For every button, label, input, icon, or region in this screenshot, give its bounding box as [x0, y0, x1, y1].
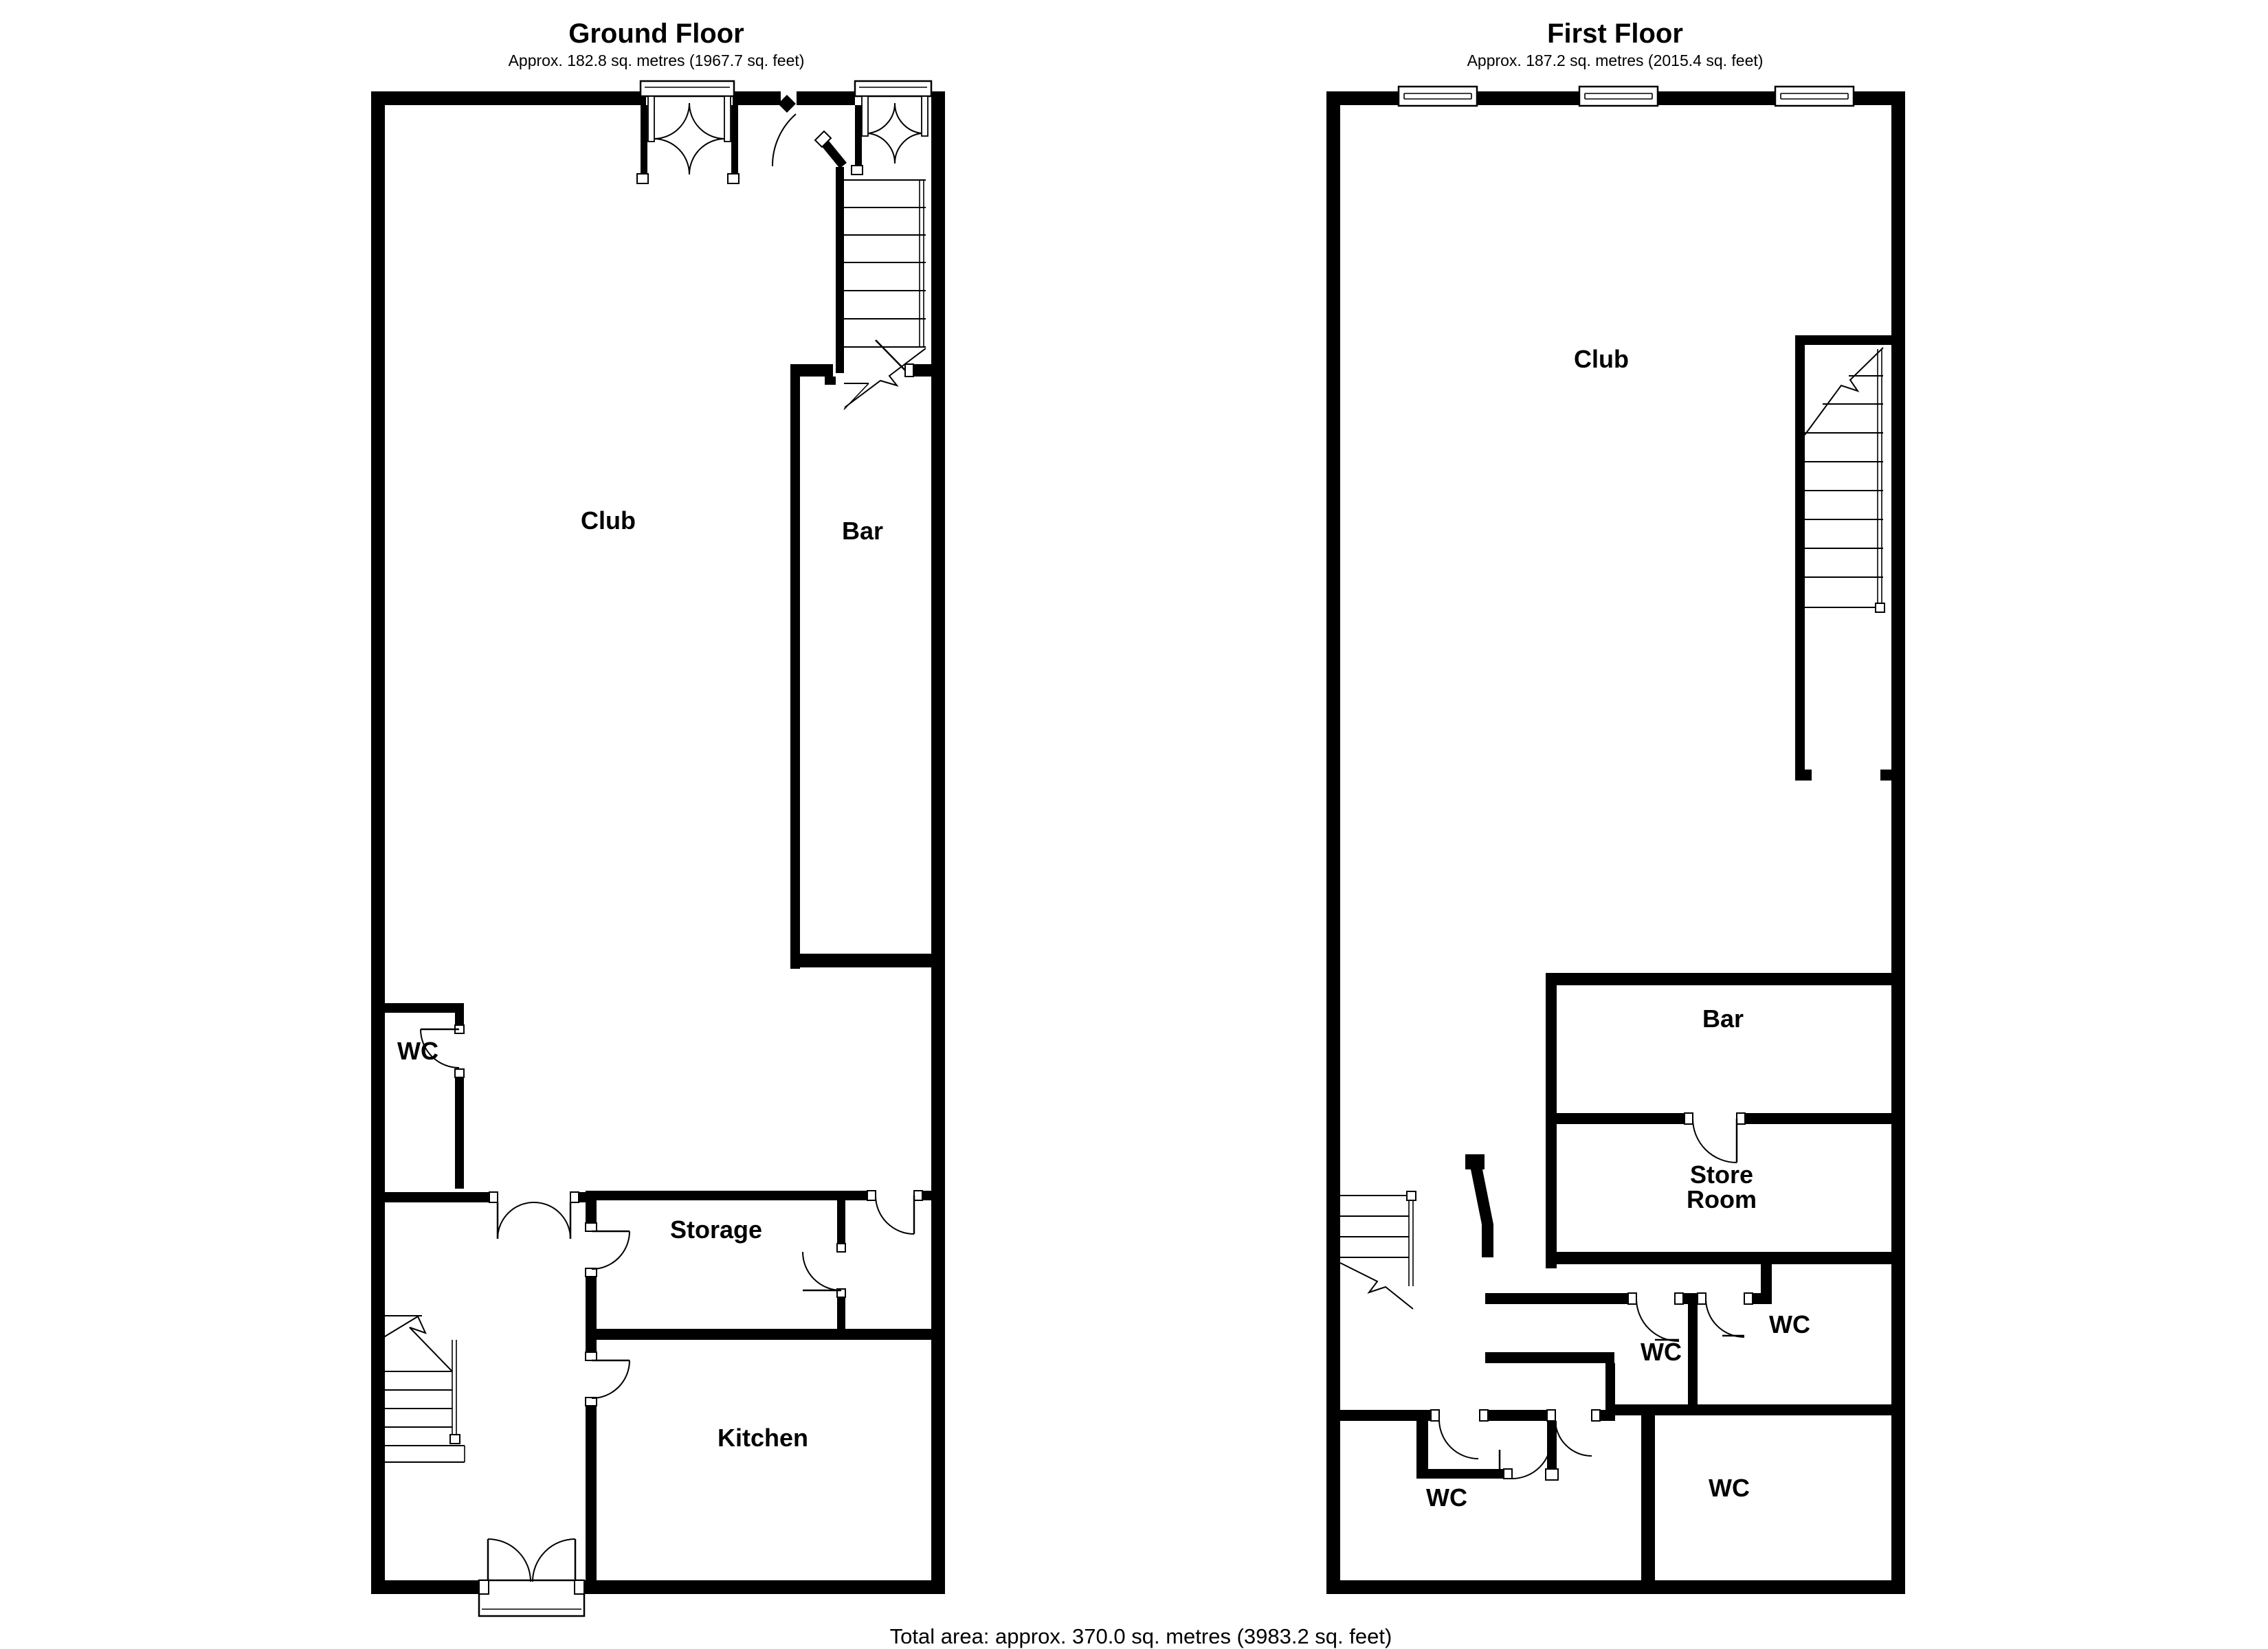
- wall-segment: [584, 1580, 945, 1594]
- door-swing-arc: [654, 103, 689, 139]
- door-jamb: [1744, 1293, 1753, 1304]
- single-entrance-door-top: [772, 95, 843, 166]
- wall-segment: [641, 105, 647, 174]
- window: [1399, 87, 1477, 106]
- ground-floor-subtitle: Approx. 182.8 sq. metres (1967.7 sq. fee…: [509, 52, 805, 69]
- ground-floor-title: Ground Floor: [568, 19, 744, 49]
- door-jamb: [1546, 1469, 1558, 1480]
- wall-segment: [836, 167, 844, 373]
- door-frame-side: [922, 96, 928, 136]
- door-swing-arc: [1706, 1299, 1744, 1337]
- door-jamb: [489, 1192, 498, 1202]
- stair-break-line: [845, 348, 926, 407]
- wall-segment: [1546, 973, 1891, 985]
- stair-break-line: [379, 1316, 452, 1371]
- total-area-text: Total area: approx. 370.0 sq. metres (39…: [890, 1624, 1392, 1648]
- wall-segment: [1416, 1469, 1504, 1479]
- door-jamb: [914, 1191, 922, 1200]
- wall-segment: [1615, 1404, 1891, 1415]
- wall-segment: [1488, 1410, 1547, 1421]
- wall-segment: [1557, 1113, 1685, 1124]
- wall-segment: [1340, 1410, 1431, 1421]
- room-label-wc-upper-right: WC: [1769, 1310, 1810, 1338]
- door-swing-arc: [1439, 1420, 1478, 1459]
- door-jamb: [1547, 1410, 1555, 1421]
- wall-end-cap: [852, 166, 863, 175]
- bar-store-door: [1685, 1113, 1745, 1163]
- door-jamb: [1480, 1410, 1488, 1421]
- stair-break-line: [1805, 348, 1883, 435]
- door-swing-arc: [689, 103, 724, 139]
- door-swing-arc: [803, 1252, 841, 1290]
- wall-segment: [825, 377, 836, 385]
- ground-floor-plan: Ground Floor Approx. 182.8 sq. metres (1…: [371, 19, 945, 1616]
- room-label-wc: WC: [397, 1037, 438, 1065]
- first-floor-title: First Floor: [1547, 19, 1683, 49]
- wall-segment: [371, 1003, 464, 1013]
- door-swing-arc: [895, 133, 922, 164]
- room-label-storage: Storage: [670, 1215, 762, 1244]
- wall-segment: [1482, 1224, 1493, 1257]
- wall-segment: [1546, 1252, 1891, 1264]
- room-label-club: Club: [581, 506, 636, 535]
- door-leaf: [876, 340, 905, 370]
- wall-segment: [837, 1200, 845, 1244]
- door-swing-arc: [772, 114, 796, 166]
- door-window-frame: [855, 81, 931, 96]
- door-swing-arc: [533, 1539, 575, 1582]
- ground-floor-walls: [371, 91, 945, 1594]
- room-label-bar: Bar: [842, 517, 883, 545]
- wall-segment: [586, 1277, 597, 1352]
- wall-segment: [1683, 1293, 1698, 1304]
- door-frame-side: [862, 96, 868, 136]
- door-swing-arc: [868, 103, 895, 133]
- door-swing-arc: [534, 1202, 570, 1239]
- room-label-wc-middle: WC: [1641, 1338, 1682, 1366]
- wall-segment: [1795, 335, 1805, 781]
- stairs-upper-right: [844, 180, 926, 410]
- wall-segment: [586, 1202, 597, 1223]
- wall-segment: [1641, 1413, 1655, 1580]
- wall-segment: [371, 91, 646, 105]
- wall-segment: [586, 1191, 867, 1200]
- wall-segment: [586, 1406, 597, 1580]
- door-swing-arc: [488, 1539, 531, 1582]
- wall-segment: [1471, 1169, 1493, 1224]
- door-jamb: [1675, 1293, 1683, 1304]
- wall-segment: [1753, 1293, 1761, 1304]
- wall-segment: [733, 91, 781, 105]
- room-label-store-room-line1: Store: [1690, 1160, 1753, 1189]
- wall-segment: [1485, 1352, 1614, 1363]
- wall-segment: [922, 1191, 931, 1200]
- wall-segment: [1795, 335, 1891, 345]
- wall-segment: [586, 1329, 931, 1340]
- door-jamb: [905, 364, 913, 377]
- door-window-frame: [1579, 87, 1658, 106]
- door-window-frame: [1399, 87, 1477, 106]
- door-jamb: [837, 1244, 845, 1252]
- room-label-bar: Bar: [1702, 1005, 1744, 1033]
- double-entrance-door-top-right: [852, 81, 931, 175]
- wall-segment: [913, 364, 931, 377]
- wall-segment: [837, 1297, 845, 1329]
- door-jamb: [1737, 1113, 1745, 1124]
- wall-segment: [1546, 973, 1557, 1268]
- detail-line: [844, 383, 869, 410]
- stairs-lower-left: [379, 1316, 465, 1462]
- door-swing-arc: [876, 1196, 914, 1234]
- door-swing-arc: [592, 1360, 630, 1398]
- wall-segment: [731, 105, 738, 174]
- windows-top: [1399, 87, 1854, 106]
- first-floor-subtitle: Approx. 187.2 sq. metres (2015.4 sq. fee…: [1467, 52, 1764, 69]
- wall-segment: [855, 105, 862, 166]
- door-swing-arc: [1693, 1119, 1737, 1163]
- door-jamb: [1685, 1113, 1693, 1124]
- door-frame-side: [648, 96, 654, 142]
- floor-plan-image: Ground Floor Approx. 182.8 sq. metres (1…: [0, 0, 2268, 1649]
- wall-segment: [931, 91, 945, 1594]
- wall-segment: [371, 1580, 479, 1594]
- wall-segment: [1485, 1293, 1628, 1304]
- room-label-kitchen: Kitchen: [718, 1424, 808, 1452]
- door-jamb: [455, 1069, 464, 1077]
- wall-segment: [1745, 1113, 1891, 1124]
- ground-floor-room-labels: Club Bar WC Storage Kitchen: [397, 506, 883, 1452]
- wall-segment: [371, 1192, 489, 1202]
- room-label-wc-large: WC: [1709, 1474, 1750, 1502]
- first-floor-plan: First Floor Approx. 187.2 sq. metres (20…: [1326, 19, 1905, 1594]
- door-jamb: [586, 1352, 597, 1360]
- room-label-store-room-line2: Room: [1687, 1185, 1757, 1213]
- wall-segment: [455, 1077, 464, 1189]
- door-jamb: [867, 1191, 876, 1200]
- wall-segment: [1326, 1580, 1905, 1594]
- door-jamb: [586, 1223, 597, 1231]
- wall-segment: [790, 364, 833, 377]
- wall-segment: [371, 91, 385, 1594]
- door-jamb: [1698, 1293, 1706, 1304]
- window: [1775, 87, 1854, 106]
- first-floor-room-labels: Club Bar Store Room WC WC WC WC: [1426, 345, 1810, 1512]
- door-swing-arc: [592, 1231, 630, 1269]
- door-jamb: [1504, 1469, 1512, 1479]
- door-frame-side: [724, 96, 731, 142]
- wall-segment: [1600, 1410, 1615, 1421]
- wall-end-cap: [1407, 1191, 1416, 1200]
- door-swing-arc: [498, 1202, 534, 1239]
- door-jamb: [1592, 1410, 1600, 1421]
- door-jamb: [570, 1192, 579, 1202]
- stairs-left: [1340, 1191, 1416, 1309]
- door-swing-arc: [654, 139, 689, 175]
- double-entrance-door-top-left: [637, 81, 739, 183]
- window: [1579, 87, 1658, 106]
- wall-segment: [1880, 770, 1891, 781]
- wall-end-cap: [728, 174, 739, 183]
- door-swing-arc: [689, 139, 724, 175]
- first-floor-walls: [1326, 91, 1905, 1594]
- main-entrance-double-door: [479, 1539, 584, 1616]
- door-swing-arc: [895, 103, 922, 133]
- door-jamb: [1431, 1410, 1439, 1421]
- wall-segment: [1891, 91, 1905, 1594]
- wall-segment: [1465, 1154, 1485, 1169]
- door-jamb: [575, 1580, 584, 1594]
- wall-end-cap: [450, 1435, 460, 1444]
- door-swing-arc: [1555, 1420, 1592, 1456]
- stairs-right: [1805, 348, 1885, 612]
- door-swing-arc: [1636, 1299, 1679, 1341]
- door-swing-arc: [868, 133, 895, 164]
- wall-segment: [1326, 91, 1340, 1594]
- door-window-frame: [479, 1580, 584, 1616]
- door-jamb: [479, 1580, 489, 1594]
- lobby-double-door: [489, 1192, 579, 1239]
- wall-segment: [797, 91, 855, 105]
- wall-end-cap: [637, 174, 648, 183]
- wall-end-cap: [1876, 603, 1885, 612]
- room-label-club: Club: [1574, 345, 1629, 373]
- wall-segment: [790, 364, 800, 969]
- wall-segment: [790, 954, 945, 967]
- door-leaf: [825, 143, 843, 166]
- door-window-frame: [1775, 87, 1854, 106]
- door-jamb: [1628, 1293, 1636, 1304]
- wall-segment: [1605, 1363, 1615, 1410]
- stair-break-line: [1340, 1263, 1413, 1309]
- wall-segment: [1761, 1264, 1772, 1304]
- door-window-frame: [641, 81, 734, 96]
- wall-segment: [1795, 770, 1812, 781]
- wall-segment: [455, 1003, 464, 1025]
- room-label-wc-lower-left: WC: [1426, 1483, 1467, 1512]
- wall-segment: [1688, 1304, 1698, 1407]
